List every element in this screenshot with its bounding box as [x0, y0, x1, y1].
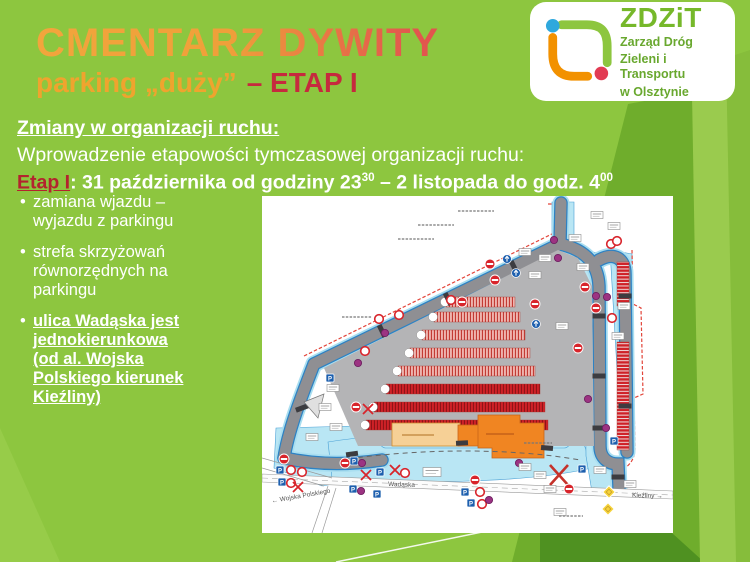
label-sign-icon — [539, 255, 551, 262]
purple-sign-icon — [381, 329, 388, 336]
svg-text:P: P — [612, 439, 616, 445]
page-title: CMENTARZ DYWITY — [36, 22, 516, 64]
purple-sign-icon — [554, 254, 561, 261]
traffic-plan-map-box: PPPPPPPPPPP ← Wojska PolskiegoWadąskaKie… — [262, 196, 673, 533]
no-entry-sign-icon — [580, 282, 590, 292]
svg-text:P: P — [469, 501, 473, 507]
purple-sign-icon — [603, 293, 610, 300]
logo-acronym: ZDZiT — [620, 4, 727, 32]
title-block: CMENTARZ DYWITY parking „duży”– ETAP I — [36, 22, 516, 97]
purple-sign-icon — [584, 395, 591, 402]
street-label: Kieźliny → — [632, 492, 663, 500]
no-entry-sign-icon — [490, 275, 500, 285]
label-sign-icon — [534, 472, 546, 479]
parking-row — [422, 330, 525, 340]
ring-sign-icon — [361, 347, 370, 356]
ring-sign-icon — [395, 311, 404, 320]
blue-sq-sign-icon: P — [376, 468, 384, 476]
blue-sq-sign-icon: P — [349, 485, 357, 493]
svg-text:P: P — [463, 490, 467, 496]
svg-text:P: P — [351, 487, 355, 493]
side-parking-strip — [617, 342, 629, 450]
svg-text:P: P — [328, 376, 332, 382]
blue-round-sign-icon — [503, 255, 512, 264]
bullet-dot: • — [20, 312, 33, 407]
logo-line3: w Olsztynie — [620, 85, 727, 100]
row-end-cap — [381, 385, 390, 394]
intro-text: Wprowadzenie etapowości tymczasowej orga… — [17, 144, 657, 167]
bullet-item: •zamiana wjazdu – wyjazdu z parkingu — [20, 193, 220, 231]
label-sign-icon — [624, 481, 636, 488]
svg-text:P: P — [280, 480, 284, 486]
no-entry-sign-icon — [564, 484, 574, 494]
label-sign-icon — [594, 467, 606, 474]
row-end-cap — [429, 313, 438, 322]
blue-sq-sign-icon: P — [373, 490, 381, 498]
purple-sign-icon — [357, 487, 364, 494]
label-sign-icon — [556, 323, 568, 330]
blue-sq-sign-icon: P — [326, 374, 334, 382]
no-entry-sign-icon — [457, 297, 467, 307]
etap-text-2: – 2 listopada do godz. 4 — [375, 172, 600, 194]
zdzit-logo-card: ZDZiT Zarząd Dróg Zieleni i Transportu w… — [530, 2, 735, 101]
label-sign-icon — [544, 486, 556, 493]
bullet-text: zamiana wjazdu – wyjazdu z parkingu — [33, 193, 193, 231]
blue-round-sign-icon — [532, 320, 541, 329]
ring-sign-icon — [613, 237, 622, 246]
svg-text:P: P — [352, 459, 356, 465]
row-end-cap — [417, 331, 426, 340]
blue-sq-sign-icon: P — [350, 457, 358, 465]
no-entry-sign-icon — [340, 458, 350, 468]
blue-sq-sign-icon: P — [278, 478, 286, 486]
parking-row — [386, 384, 540, 394]
etap-sup-2: 00 — [600, 171, 613, 184]
label-sign-icon — [577, 264, 589, 271]
svg-text:P: P — [378, 470, 382, 476]
bullet-item: •strefa skrzyżowań równorzędnych na park… — [20, 243, 220, 300]
svg-text:P: P — [278, 468, 282, 474]
label-lg-sign-icon — [423, 468, 441, 477]
section-heading: Zmiany w organizacji ruchu: — [17, 117, 657, 140]
label-sign-icon — [330, 424, 342, 431]
blue-sq-sign-icon: P — [276, 466, 284, 474]
blue-sq-sign-icon: P — [461, 488, 469, 496]
ring-sign-icon — [447, 296, 456, 305]
purple-sign-icon — [602, 424, 609, 431]
etap-separator: : — [70, 172, 82, 194]
row-end-cap — [393, 367, 402, 376]
label-sign-icon — [519, 249, 531, 256]
purple-sign-icon — [550, 236, 557, 243]
purple-sign-icon — [354, 359, 361, 366]
content-block: Zmiany w organizacji ruchu: Wprowadzenie… — [17, 117, 657, 195]
purple-sign-icon — [592, 292, 599, 299]
parking-row — [398, 366, 535, 376]
row-end-cap — [361, 421, 370, 430]
ring-sign-icon — [478, 500, 487, 509]
logo-line2: Zieleni i Transportu — [620, 52, 727, 82]
row-end-cap — [405, 349, 414, 358]
label-sign-icon — [519, 464, 531, 471]
slide-root: { "slide": { "title": "CMENTARZ DYWITY",… — [0, 0, 750, 562]
label-sign-icon — [554, 509, 566, 516]
bullet-text: ulica Wadąska jest jednokierunkowa (od a… — [33, 312, 193, 407]
parking-row — [410, 348, 530, 358]
ring-sign-icon — [476, 488, 485, 497]
label-sign-icon — [569, 235, 581, 242]
svg-text:P: P — [580, 467, 584, 473]
parking-row — [434, 312, 520, 322]
ring-sign-icon — [608, 314, 617, 323]
etap-sup-1: 30 — [362, 171, 375, 184]
bullet-item: •ulica Wadąska jest jednokierunkowa (od … — [20, 312, 220, 407]
logo-line1: Zarząd Dróg — [620, 35, 727, 50]
parking-row — [374, 402, 545, 412]
label-sign-icon — [591, 212, 603, 219]
blue-round-sign-icon — [512, 269, 521, 278]
label-sign-icon — [608, 223, 620, 230]
zdzit-logo-text: ZDZiT Zarząd Dróg Zieleni i Transportu w… — [620, 4, 727, 100]
side-parking-strip — [617, 262, 629, 306]
purple-sign-icon — [485, 496, 492, 503]
page-subtitle: parking „duży”– ETAP I — [36, 68, 516, 97]
bullet-dot: • — [20, 243, 33, 300]
subtitle-red: – ETAP I — [247, 67, 358, 98]
blue-sq-sign-icon: P — [467, 499, 475, 507]
subtitle-orange: parking „duży” — [36, 67, 237, 98]
etap-line: Etap I: 31 października od godziny 2330 … — [17, 171, 657, 195]
bullet-list: •zamiana wjazdu – wyjazdu z parkingu•str… — [20, 193, 220, 419]
label-sign-icon — [319, 404, 331, 411]
label-sign-icon — [612, 333, 624, 340]
ring-sign-icon — [375, 315, 384, 324]
parking-row — [446, 297, 515, 307]
no-entry-sign-icon — [485, 259, 495, 269]
side-parking-strips — [617, 262, 629, 450]
bullet-text: strefa skrzyżowań równorzędnych na parki… — [33, 243, 193, 300]
no-entry-sign-icon — [530, 299, 540, 309]
ring-sign-icon — [298, 468, 307, 477]
purple-sign-icon — [358, 459, 365, 466]
ring-sign-icon — [287, 466, 296, 475]
etap-text-1: 31 października od godziny 23 — [82, 172, 362, 194]
blue-sq-sign-icon: P — [578, 465, 586, 473]
no-entry-sign-icon — [351, 402, 361, 412]
no-entry-sign-icon — [591, 303, 601, 313]
blue-sq-sign-icon: P — [610, 437, 618, 445]
bullet-dot: • — [20, 193, 33, 231]
etap-label: Etap I — [17, 172, 70, 194]
no-entry-sign-icon — [573, 343, 583, 353]
label-sign-icon — [327, 385, 339, 392]
label-sign-icon — [306, 434, 318, 441]
label-sign-icon — [529, 272, 541, 279]
no-entry-sign-icon — [470, 475, 480, 485]
label-sign-icon — [618, 303, 630, 310]
svg-text:P: P — [375, 492, 379, 498]
street-label: Wadąska — [388, 481, 415, 489]
zdzit-logo-icon — [544, 17, 614, 87]
ring-sign-icon — [401, 469, 410, 478]
no-entry-sign-icon — [279, 454, 289, 464]
parking-traffic-plan-map: PPPPPPPPPPP ← Wojska PolskiegoWadąskaKie… — [262, 196, 673, 533]
